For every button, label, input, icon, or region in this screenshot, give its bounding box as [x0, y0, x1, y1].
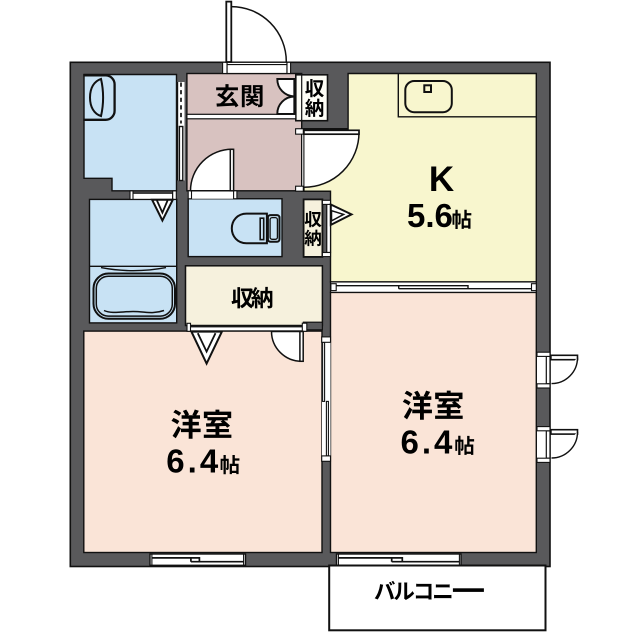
svg-text:6.4: 6.4 — [401, 423, 456, 460]
svg-text:K: K — [429, 160, 454, 199]
svg-text:6.4: 6.4 — [166, 443, 221, 480]
svg-text:5.6: 5.6 — [407, 197, 453, 234]
